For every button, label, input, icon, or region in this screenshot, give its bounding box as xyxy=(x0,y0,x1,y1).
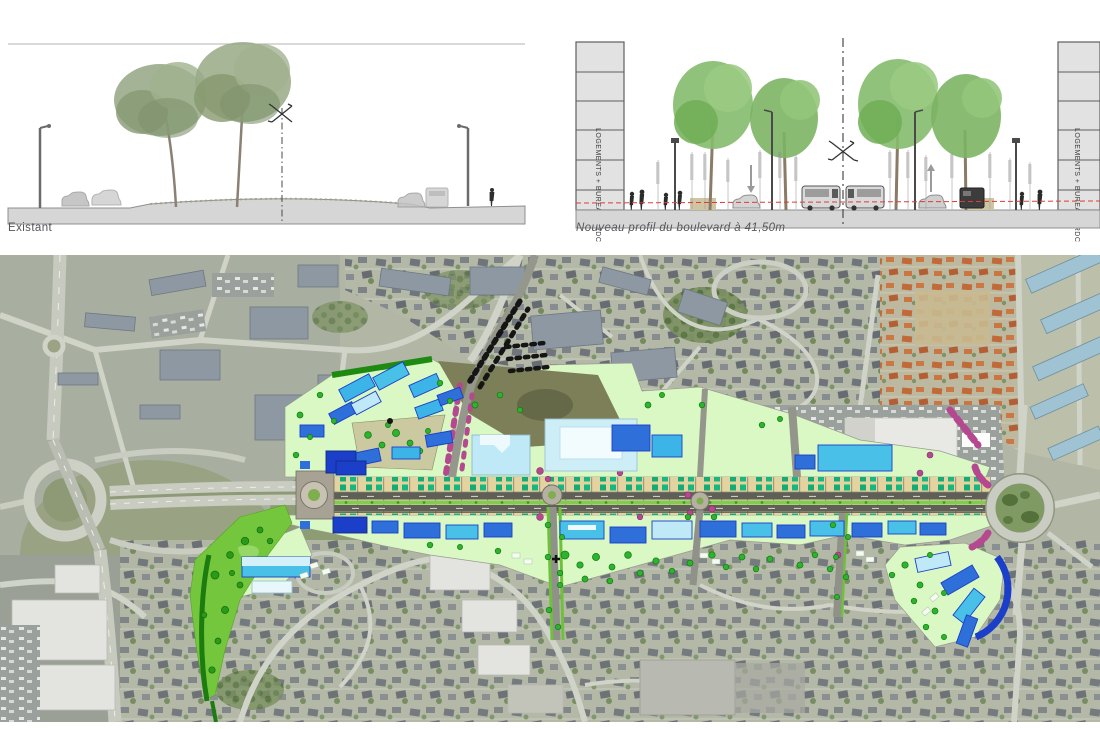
tree-icon xyxy=(194,42,291,207)
pedestrian-icon xyxy=(490,188,495,206)
caption-existant: Existant xyxy=(8,222,52,234)
section-existant: Existant xyxy=(0,0,540,250)
tree-icon xyxy=(673,61,753,210)
street-lamp-icon xyxy=(457,124,468,206)
tree-icon xyxy=(114,62,206,207)
boulevard xyxy=(298,477,990,515)
section-nouveau: LOGEMENTS + BUREAUX RDC LOGEMENTS + BURE… xyxy=(570,0,1100,250)
document-page: Existant LOGEMENTS + BUREAUX RDC xyxy=(0,0,1100,729)
caption-nouveau: Nouveau profil du boulevard à 41,50m xyxy=(576,222,785,234)
school-building xyxy=(640,660,735,715)
existant-drawing xyxy=(0,0,540,250)
aerial-plan-svg xyxy=(0,255,1100,722)
car-icon xyxy=(398,188,448,207)
nouveau-drawing: LOGEMENTS + BUREAUX RDC LOGEMENTS + BURE… xyxy=(570,0,1100,250)
masterplan-map xyxy=(0,255,1100,722)
street-lamp-icon xyxy=(40,124,51,208)
small-roundabout xyxy=(45,337,63,355)
east-roundabout xyxy=(985,473,1055,543)
parking-lot xyxy=(0,625,40,722)
car-icon xyxy=(62,190,121,206)
